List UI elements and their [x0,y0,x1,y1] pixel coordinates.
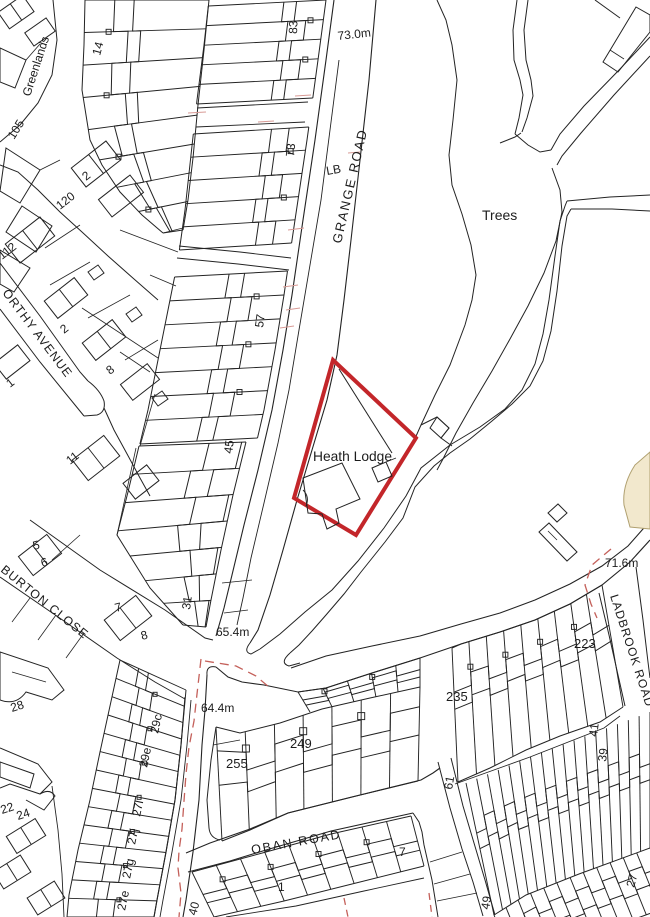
svg-text:31: 31 [179,595,195,610]
svg-text:49: 49 [478,895,494,911]
svg-text:Trees: Trees [482,207,517,223]
svg-text:235: 235 [446,689,468,704]
svg-text:39: 39 [595,747,611,762]
svg-text:64.4m: 64.4m [201,701,234,715]
svg-text:45: 45 [221,439,237,454]
svg-text:255: 255 [226,756,248,771]
svg-text:LB: LB [325,162,342,178]
svg-text:61: 61 [441,775,457,791]
svg-text:73: 73 [283,142,298,157]
svg-text:71.6m: 71.6m [605,556,638,570]
svg-text:83: 83 [286,20,300,34]
svg-text:Heath Lodge: Heath Lodge [313,449,392,464]
svg-text:7: 7 [399,845,406,859]
svg-text:65.4m: 65.4m [216,625,249,639]
svg-text:223: 223 [574,636,596,651]
svg-text:1: 1 [278,880,285,894]
svg-text:249: 249 [290,736,312,751]
svg-text:57: 57 [252,313,268,328]
svg-text:41: 41 [586,722,602,737]
